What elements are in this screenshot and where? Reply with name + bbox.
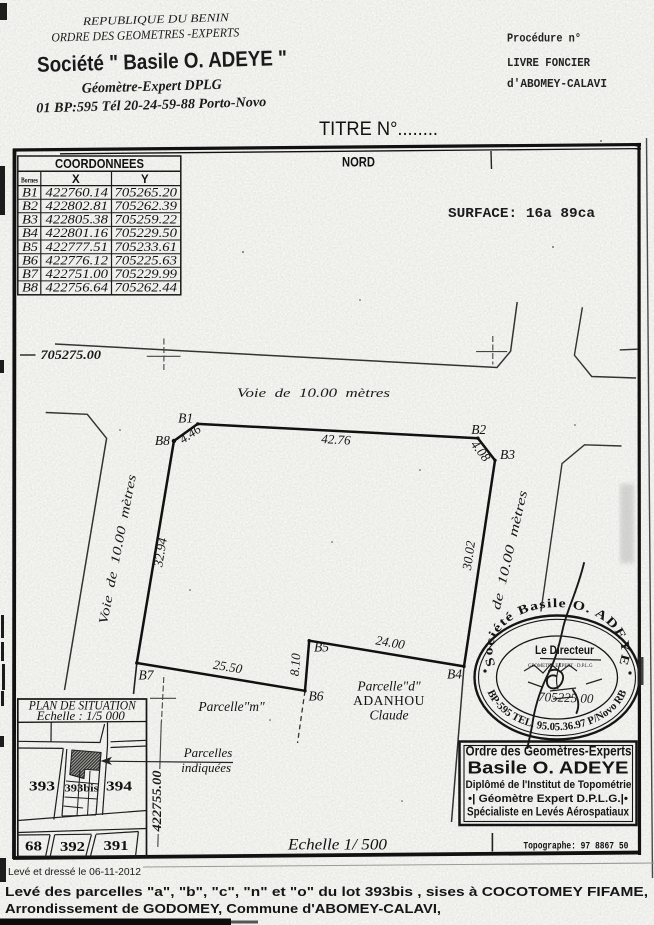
svg-text:391: 391 bbox=[104, 838, 129, 853]
svg-text:B8: B8 bbox=[22, 280, 39, 295]
svg-text:Voie de 10.00 mètres: Voie de 10.00 mètres bbox=[237, 385, 390, 400]
svg-text:COORDONNEES: COORDONNEES bbox=[55, 157, 144, 171]
svg-text:Ordre des Geomètres-Experts: Ordre des Geomètres-Experts bbox=[466, 743, 632, 759]
svg-text:Bornes: Bornes bbox=[21, 177, 38, 185]
svg-text:422756.64: 422756.64 bbox=[46, 280, 109, 295]
svg-text:Parcelles: Parcelles bbox=[183, 745, 233, 760]
svg-text:392: 392 bbox=[60, 839, 85, 854]
svg-text:42.76: 42.76 bbox=[321, 431, 351, 447]
svg-text:B5: B5 bbox=[314, 640, 329, 655]
svg-text:B4: B4 bbox=[447, 667, 462, 682]
svg-text:Levé et dressé le 06-11-2012: Levé et dressé le 06-11-2012 bbox=[8, 866, 141, 878]
svg-text:B6: B6 bbox=[309, 689, 324, 704]
svg-text:B8: B8 bbox=[155, 433, 170, 448]
svg-text:705275.00: 705275.00 bbox=[41, 348, 102, 362]
svg-text:TITRE N°........: TITRE N°........ bbox=[319, 119, 438, 140]
svg-text:Spécialiste en Levés Aérospati: Spécialiste en Levés Aérospatiaux bbox=[467, 807, 630, 819]
svg-text:Le Directeur: Le Directeur bbox=[535, 643, 594, 657]
svg-text:393bis: 393bis bbox=[65, 783, 100, 795]
svg-text:Diplômé de l'Institut de Topom: Diplômé de l'Institut de Topométrie bbox=[466, 779, 632, 791]
svg-text:422755.00: 422755.00 bbox=[150, 770, 164, 833]
svg-text:B2: B2 bbox=[471, 422, 486, 437]
svg-text:ADANHOU: ADANHOU bbox=[353, 693, 425, 708]
svg-text:Levé des parcelles "a", "b", ": Levé des parcelles "a", "b", "c", "n" et… bbox=[5, 884, 648, 899]
svg-text:Parcelle"m": Parcelle"m" bbox=[197, 699, 265, 714]
svg-text:Parcelle"d": Parcelle"d" bbox=[356, 679, 421, 694]
svg-text:SURFACE: 16a 89ca: SURFACE: 16a 89ca bbox=[448, 206, 596, 222]
svg-text:Arrondissement de GODOMEY, Com: Arrondissement de GODOMEY, Commune d'ABO… bbox=[5, 901, 441, 916]
svg-text:•| Géomètre Expert D.P.L.G.|•: •| Géomètre Expert D.P.L.G.|• bbox=[468, 793, 628, 805]
svg-text:GEOMETRE EXPERT · D.P.L.G: GEOMETRE EXPERT · D.P.L.G bbox=[528, 664, 593, 669]
svg-text:705262.44: 705262.44 bbox=[115, 280, 178, 295]
svg-text:Procédure n°: Procédure n° bbox=[507, 33, 581, 46]
svg-text:Claude: Claude bbox=[370, 708, 409, 723]
svg-text:NORD: NORD bbox=[342, 154, 375, 170]
svg-text:Topographe: 97 8867 50: Topographe: 97 8867 50 bbox=[523, 841, 628, 853]
svg-text:394: 394 bbox=[106, 780, 132, 795]
svg-text:B3: B3 bbox=[500, 447, 515, 462]
svg-text:d'ABOMEY-CALAVI: d'ABOMEY-CALAVI bbox=[507, 78, 607, 91]
svg-text:LIVRE FONCIER: LIVRE FONCIER bbox=[507, 57, 590, 70]
svg-text:393: 393 bbox=[29, 780, 55, 795]
svg-text:Echelle 1/ 500: Echelle 1/ 500 bbox=[287, 837, 387, 854]
svg-text:Basile O. ADEYE: Basile O. ADEYE bbox=[468, 758, 629, 778]
svg-text:B7: B7 bbox=[139, 668, 155, 683]
svg-text:Echelle : 1/5 000: Echelle : 1/5 000 bbox=[36, 709, 126, 723]
svg-text:68: 68 bbox=[25, 839, 42, 854]
svg-text:8.10: 8.10 bbox=[287, 652, 304, 676]
